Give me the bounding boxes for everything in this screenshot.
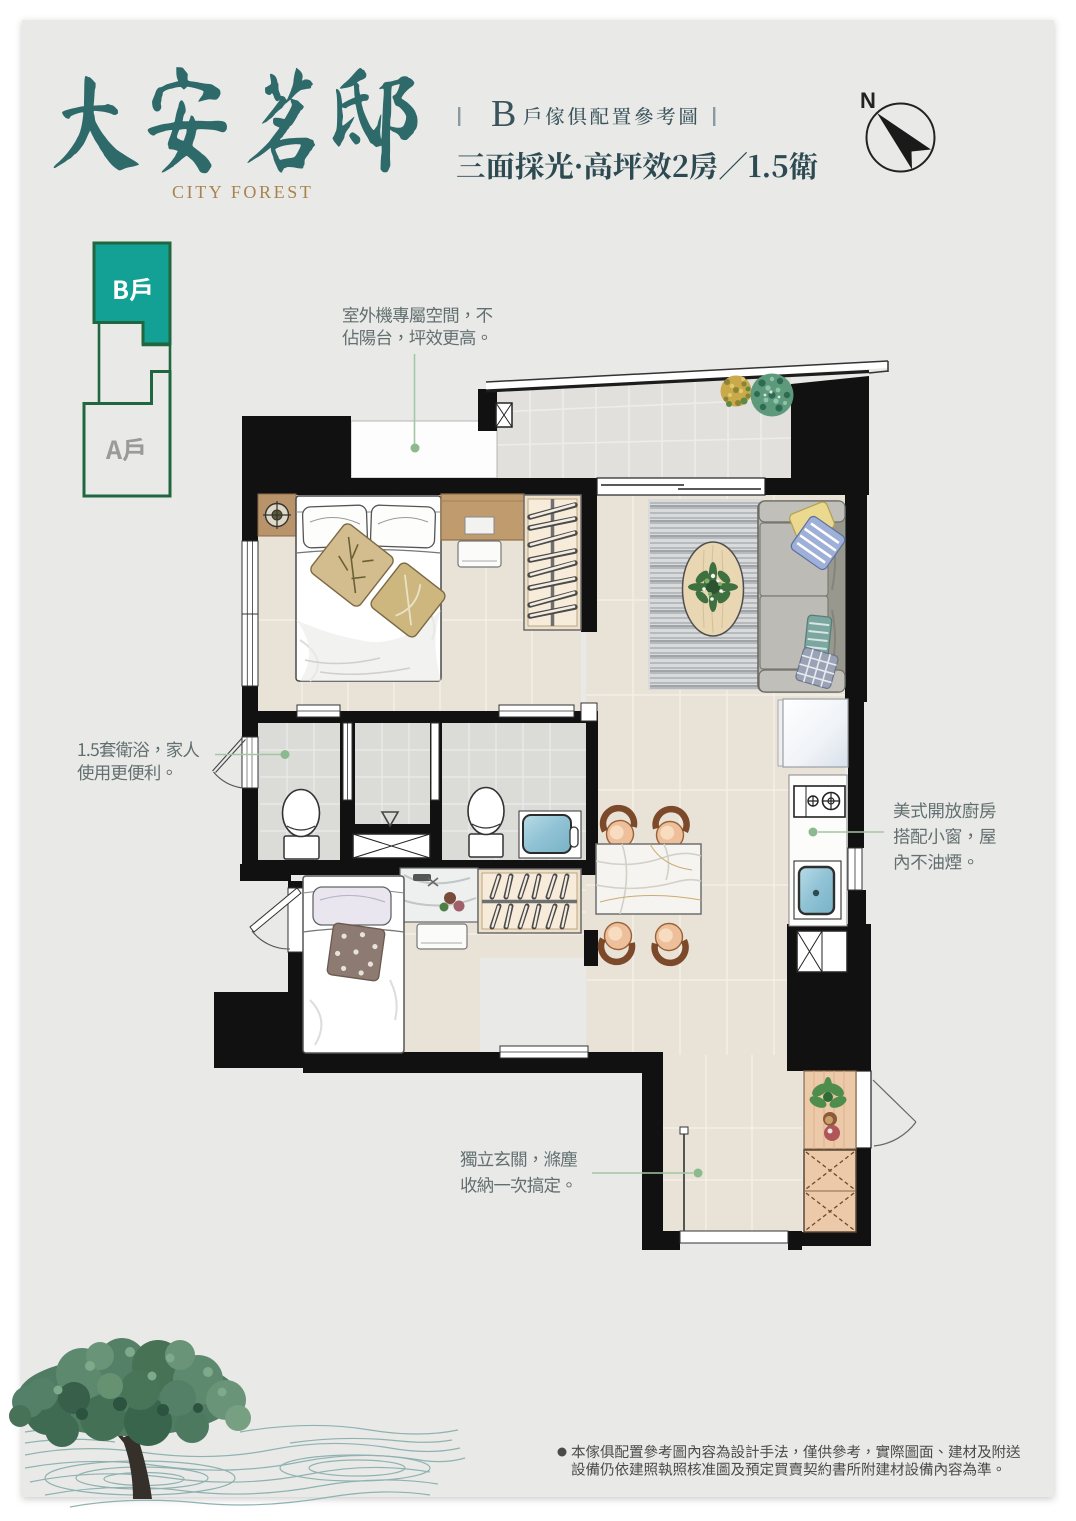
svg-text:B: B [491, 93, 516, 135]
svg-text:N: N [860, 88, 876, 113]
svg-text:CITY FOREST: CITY FOREST [172, 182, 313, 202]
